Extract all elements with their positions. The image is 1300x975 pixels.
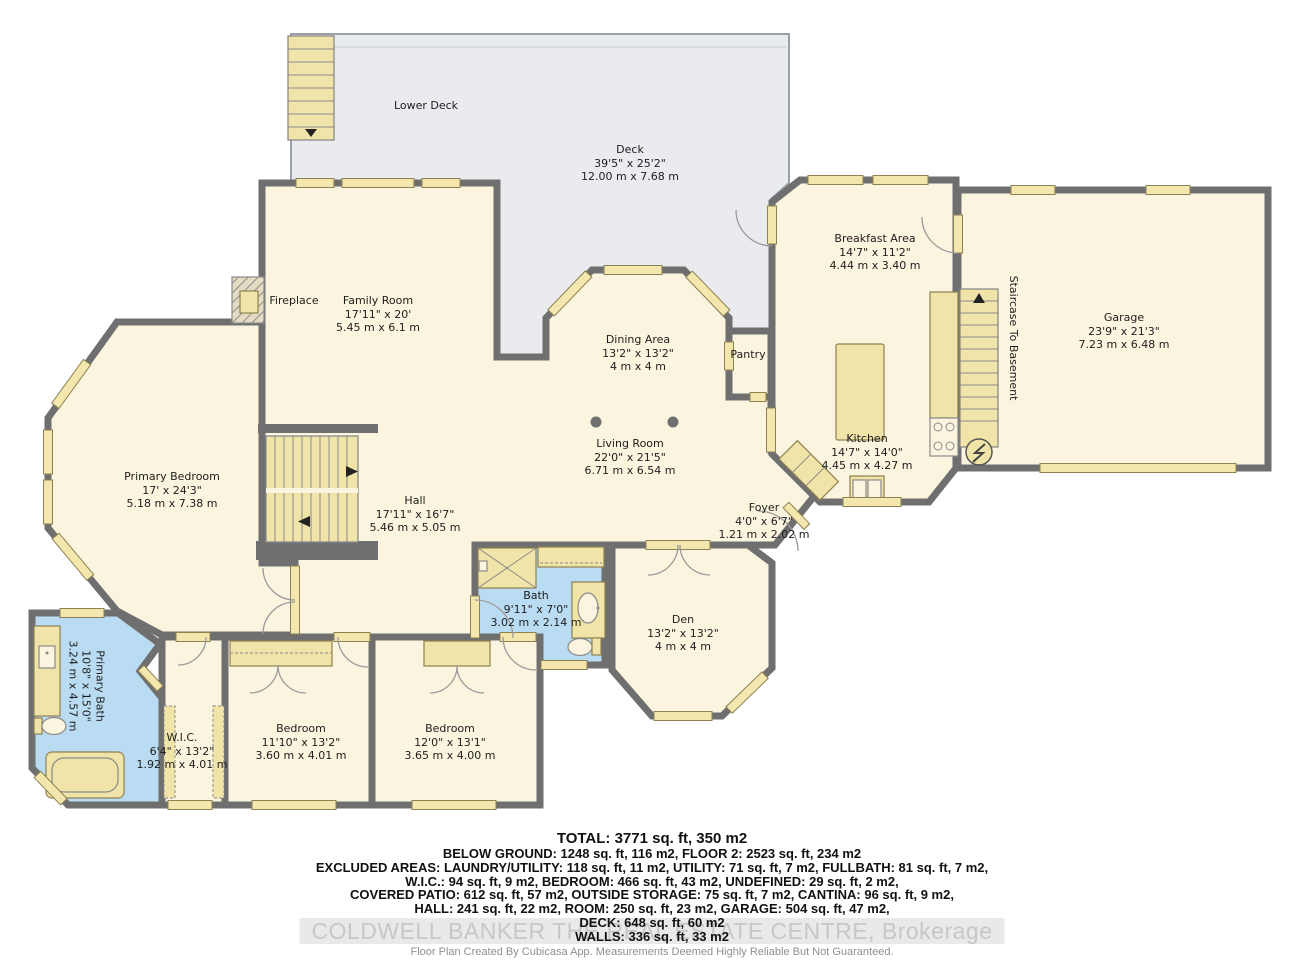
wall-above-hall-stairs [258,424,378,433]
room-name: Deck [581,143,679,157]
room-name: Primary Bedroom [124,470,220,484]
room-dim-imperial: 14'7" x 14'0" [822,446,913,460]
living-room-column [591,417,602,428]
kitchen-counter [930,292,958,418]
room-label-bedroom-2: Bedroom 12'0" x 13'1" 3.65 m x 4.00 m [405,722,496,763]
room-label-dining-area: Dining Area 13'2" x 13'2" 4 m x 4 m [602,333,674,374]
area-summary: TOTAL: 3771 sq. ft, 350 m2 BELOW GROUND:… [316,830,988,944]
room-label-bedroom-1: Bedroom 11'10" x 13'2" 3.60 m x 4.01 m [256,722,347,763]
living-room-column [668,417,679,428]
floor-plan-page: Lower Deck Deck 39'5" x 25'2" 12.00 m x … [0,0,1300,975]
room-name: Bath [491,589,582,603]
room-dim-metric: 5.45 m x 6.1 m [336,321,420,335]
room-dim-metric: 4.45 m x 4.27 m [822,459,913,473]
room-label-kitchen: Kitchen 14'7" x 14'0" 4.45 m x 4.27 m [822,432,913,473]
label-fireplace: Fireplace [269,294,318,308]
room-label-pantry: Pantry [730,348,765,362]
room-dim-imperial: 13'2" x 13'2" [647,627,719,641]
hall-staircase [266,436,358,542]
summary-line: BELOW GROUND: 1248 sq. ft, 116 m2, FLOOR… [316,847,988,861]
summary-line: HALL: 241 sq. ft, 22 m2, ROOM: 250 sq. f… [316,902,988,916]
basement-staircase [960,289,998,447]
room-dim-imperial: 39'5" x 25'2" [581,157,679,171]
room-dim-metric: 1.92 m x 4.01 m [137,758,228,772]
room-dim-metric: 3.24 m x 4.57 m [66,641,80,732]
room-name: Staircase To Basement [1006,276,1020,401]
summary-line: EXCLUDED AREAS: LAUNDRY/UTILITY: 118 sq.… [316,861,988,875]
room-dim-metric: 7.23 m x 6.48 m [1079,338,1170,352]
room-label-foyer: Foyer 4'0" x 6'7" 1.21 m x 2.02 m [719,501,810,542]
summary-line: W.I.C.: 94 sq. ft, 9 m2, BEDROOM: 466 sq… [316,875,988,889]
stove [930,418,958,456]
room-dim-imperial: 12'0" x 13'1" [405,736,496,750]
disclaimer-text: Floor Plan Created By Cubicasa App. Meas… [410,946,893,958]
room-label-bath: Bath 9'11" x 7'0" 3.02 m x 2.14 m [491,589,582,630]
summary-line: DECK: 648 sq. ft, 60 m2 [316,916,988,930]
room-name: Living Room [585,437,676,451]
room-name: Foyer [719,501,810,515]
room-label-primary-bath: Primary Bath 10'8" x 15'0" 3.24 m x 4.57… [66,641,107,732]
room-name: Fireplace [269,294,318,308]
room-dim-metric: 5.46 m x 5.05 m [370,521,461,535]
room-name: Dining Area [602,333,674,347]
room-dim-metric: 4.44 m x 3.40 m [830,259,921,273]
kitchen-island [836,344,884,440]
room-label-hall: Hall 17'11" x 16'7" 5.46 m x 5.05 m [370,494,461,535]
room-label-den: Den 13'2" x 13'2" 4 m x 4 m [647,613,719,654]
room-dim-metric: 5.18 m x 7.38 m [124,497,220,511]
electrical-symbol-icon [966,439,992,465]
room-dim-imperial: 23'9" x 21'3" [1079,325,1170,339]
deck-stairs [288,36,334,140]
room-dim-imperial: 6'4" x 13'2" [137,745,228,759]
room-dim-metric: 12.00 m x 7.68 m [581,170,679,184]
primary-bath-toilet [34,718,66,735]
room-label-lower-deck: Lower Deck [394,99,458,113]
room-dim-imperial: 4'0" x 6'7" [719,515,810,529]
room-dim-imperial: 13'2" x 13'2" [602,347,674,361]
room-dim-imperial: 14'7" x 11'2" [830,246,921,260]
room-dim-metric: 4 m x 4 m [602,360,674,374]
room-dim-metric: 6.71 m x 6.54 m [585,464,676,478]
fireplace [232,277,264,323]
label-staircase-to-basement: Staircase To Basement [1006,276,1020,401]
room-name: Lower Deck [394,99,458,113]
room-dim-metric: 3.65 m x 4.00 m [405,749,496,763]
shower [478,548,536,588]
room-label-primary-bedroom: Primary Bedroom 17' x 24'3" 5.18 m x 7.3… [124,470,220,511]
room-name: Kitchen [822,432,913,446]
bath-cabinet [538,547,604,567]
room-label-breakfast-area: Breakfast Area 14'7" x 11'2" 4.44 m x 3.… [830,232,921,273]
room-label-family-room: Family Room 17'11" x 20' 5.45 m x 6.1 m [336,294,420,335]
bath-toilet [568,638,601,656]
room-dim-imperial: 22'0" x 21'5" [585,451,676,465]
room-label-wic: W.I.C. 6'4" x 13'2" 1.92 m x 4.01 m [137,731,228,772]
room-name: Breakfast Area [830,232,921,246]
primary-bath-vanity [34,626,60,716]
room-dim-imperial: 17' x 24'3" [124,484,220,498]
room-name: Bedroom [256,722,347,736]
room-dim-metric: 1.21 m x 2.02 m [719,528,810,542]
room-dim-metric: 3.02 m x 2.14 m [491,616,582,630]
room-label-garage: Garage 23'9" x 21'3" 7.23 m x 6.48 m [1079,311,1170,352]
room-label-living-room: Living Room 22'0" x 21'5" 6.71 m x 6.54 … [585,437,676,478]
room-name: Bedroom [405,722,496,736]
room-dim-imperial: 11'10" x 13'2" [256,736,347,750]
room-name: Hall [370,494,461,508]
room-dim-imperial: 9'11" x 7'0" [491,603,582,617]
summary-line: WALLS: 336 sq. ft, 33 m2 [316,930,988,944]
room-name: Pantry [730,348,765,362]
total-area-line: TOTAL: 3771 sq. ft, 350 m2 [316,830,988,847]
room-label-deck: Deck 39'5" x 25'2" 12.00 m x 7.68 m [581,143,679,184]
room-dim-imperial: 17'11" x 16'7" [370,508,461,522]
summary-line: COVERED PATIO: 612 sq. ft, 57 m2, OUTSID… [316,888,988,902]
room-dim-imperial: 10'8" x 15'0" [79,641,93,732]
room-name: Primary Bath [93,641,107,732]
room-dim-metric: 3.60 m x 4.01 m [256,749,347,763]
room-name: Garage [1079,311,1170,325]
wall-below-hall-stairs [256,541,378,560]
room-name: W.I.C. [137,731,228,745]
room-dim-metric: 4 m x 4 m [647,640,719,654]
room-name: Family Room [336,294,420,308]
room-name: Den [647,613,719,627]
room-outline-pantry [729,331,771,397]
room-dim-imperial: 17'11" x 20' [336,308,420,322]
